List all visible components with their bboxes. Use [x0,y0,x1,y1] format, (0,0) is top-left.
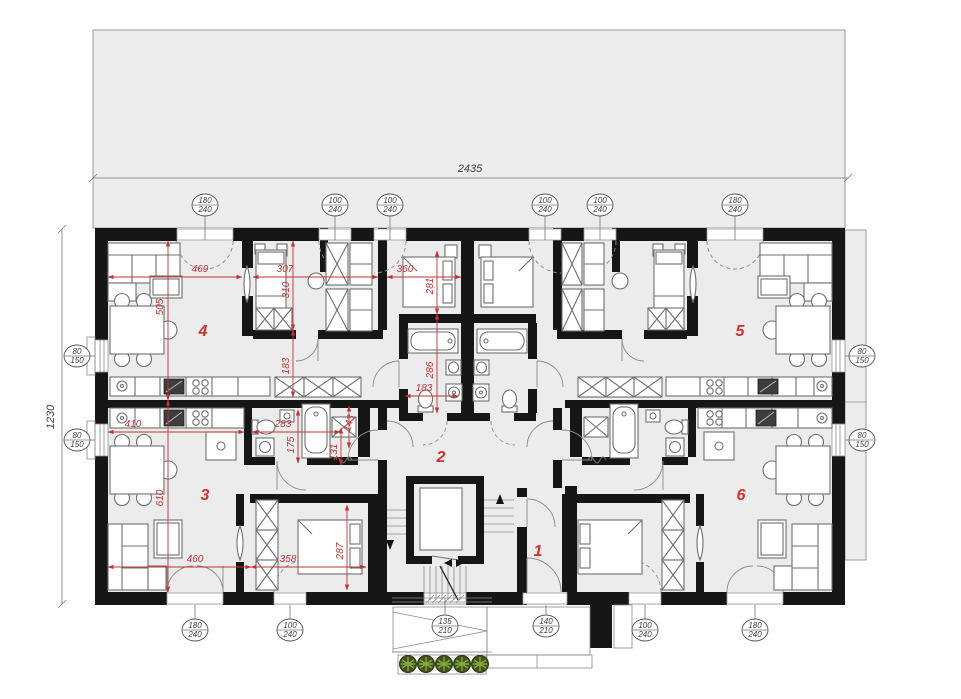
dim-2435: 2435 [457,163,483,175]
svg-text:135: 135 [438,617,452,626]
svg-text:80: 80 [858,347,867,356]
elevator-cab [420,488,462,550]
svg-text:460: 460 [187,554,204,565]
svg-text:150: 150 [70,356,84,365]
overall-height-dimension: 1230 [45,225,66,608]
svg-text:100: 100 [638,621,652,630]
kitchen-apt4 [110,377,361,397]
room-label-5: 5 [736,323,746,340]
svg-text:240: 240 [197,205,212,214]
svg-text:310: 310 [281,281,292,298]
svg-text:80: 80 [73,347,82,356]
svg-text:240: 240 [747,630,762,639]
sliding-door-icon [237,526,243,560]
room-label-4: 4 [198,323,208,340]
svg-text:358: 358 [280,554,297,565]
svg-text:240: 240 [727,205,742,214]
opening-label-left-1: 80150 [64,345,95,367]
room-label-3: 3 [201,487,210,504]
svg-text:150: 150 [70,440,84,449]
svg-text:240: 240 [537,205,552,214]
svg-text:360: 360 [397,264,414,275]
svg-text:140: 140 [539,617,553,626]
window-right-1 [832,340,845,372]
entrance-area [392,598,592,674]
svg-text:180: 180 [748,621,762,630]
opening-label-bottom-5: 100240 [632,605,658,641]
svg-text:410: 410 [125,419,142,430]
svg-text:240: 240 [637,630,652,639]
desk-chair [612,273,628,289]
opening-label-bottom-6: 180240 [742,605,768,641]
svg-text:505: 505 [155,298,166,315]
svg-text:100: 100 [538,196,552,205]
svg-text:100: 100 [383,196,397,205]
desk-chair [308,273,324,289]
svg-text:283: 283 [274,419,292,430]
svg-text:80: 80 [73,431,82,440]
svg-text:210: 210 [538,626,553,635]
svg-text:240: 240 [327,205,342,214]
room-label-1: 1 [534,543,543,560]
svg-text:175: 175 [286,436,297,453]
sliding-door-icon [697,526,703,560]
sliding-door-icon [690,266,696,302]
svg-text:180: 180 [188,621,202,630]
svg-text:100: 100 [328,196,342,205]
svg-text:469: 469 [192,264,209,275]
floor-plan-canvas: 2435 1230 [0,0,961,699]
sliding-door-icon [244,266,250,302]
svg-text:180: 180 [728,196,742,205]
opening-label-bottom-1: 180240 [182,605,208,641]
opening-label-bottom-2: 100240 [277,605,303,641]
svg-text:240: 240 [382,205,397,214]
svg-text:183: 183 [281,357,292,374]
svg-text:131: 131 [329,444,340,461]
svg-text:240: 240 [282,630,297,639]
svg-text:286: 286 [425,361,436,379]
opening-label-bottom-4: 140210 [533,605,559,637]
svg-text:287: 287 [335,542,346,560]
room-label-6: 6 [737,487,746,504]
svg-text:210: 210 [437,626,452,635]
floor-plan-drawing: 2435 1230 [0,0,961,699]
svg-text:281: 281 [425,278,436,296]
opening-label-left-2: 80150 [64,429,95,451]
svg-text:100: 100 [283,621,297,630]
svg-text:150: 150 [855,356,869,365]
svg-text:180: 180 [198,196,212,205]
svg-text:150: 150 [855,440,869,449]
window-right-2 [832,424,845,456]
svg-text:80: 80 [858,431,867,440]
svg-text:240: 240 [592,205,607,214]
svg-text:183: 183 [416,383,433,394]
dim-1230: 1230 [45,404,57,429]
svg-text:307: 307 [277,264,294,275]
room-label-2: 2 [436,449,446,466]
kitchen-apt5 [578,377,832,397]
svg-text:610: 610 [155,489,166,506]
svg-text:100: 100 [593,196,607,205]
svg-text:240: 240 [187,630,202,639]
